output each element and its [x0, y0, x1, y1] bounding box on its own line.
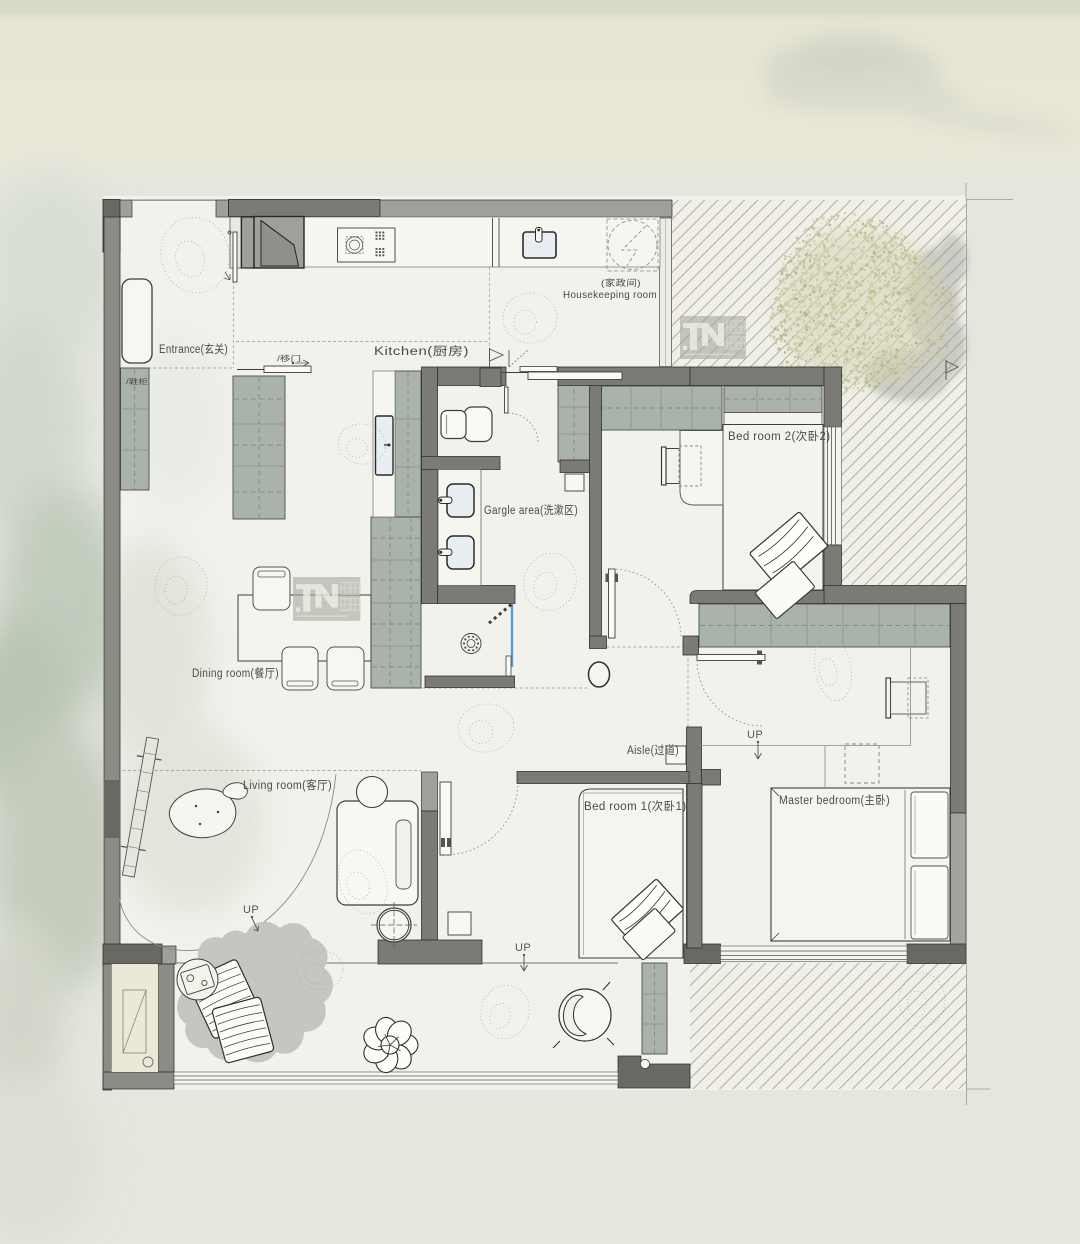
svg-text:Living room(客厅): Living room(客厅) — [243, 778, 332, 792]
svg-text:Dining room(餐厅): Dining room(餐厅) — [192, 666, 279, 680]
svg-text:UP: UP — [243, 904, 259, 916]
svg-text:Housekeeping room: Housekeeping room — [563, 289, 657, 301]
svg-text:Entrance(玄关): Entrance(玄关) — [159, 342, 228, 356]
svg-text:Bed room 2(次卧2): Bed room 2(次卧2) — [728, 429, 831, 443]
svg-text:/移门: /移门 — [277, 353, 301, 363]
svg-text:(家政间): (家政间) — [601, 277, 641, 288]
svg-text:UP: UP — [515, 942, 531, 954]
svg-text:UP: UP — [747, 729, 763, 741]
svg-text:/鞋柜: /鞋柜 — [126, 377, 148, 386]
svg-text:Aisle(过道): Aisle(过道) — [627, 743, 679, 757]
svg-text:Kitchen(厨房): Kitchen(厨房) — [374, 345, 469, 358]
svg-text:Gargle area(洗漱区): Gargle area(洗漱区) — [484, 504, 578, 517]
svg-text:Master bedroom(主卧): Master bedroom(主卧) — [779, 794, 890, 807]
svg-text:Bed room 1(次卧1): Bed room 1(次卧1) — [584, 799, 687, 813]
